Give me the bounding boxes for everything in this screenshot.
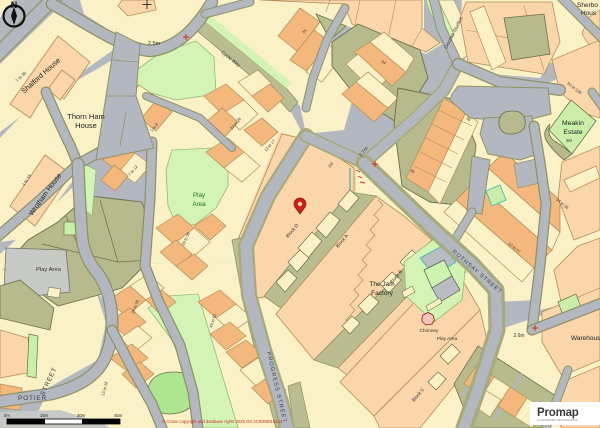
svg-text:Play Area: Play Area: [437, 336, 458, 342]
svg-text:5M: 5M: [566, 138, 572, 143]
svg-text:Estate: Estate: [563, 129, 582, 136]
svg-text:Thorn Ham: Thorn Ham: [67, 112, 105, 121]
svg-text:Play: Play: [193, 192, 206, 199]
svg-text:15m: 15m: [40, 413, 49, 418]
svg-text:The Jam: The Jam: [369, 281, 394, 288]
svg-text:45m: 45m: [114, 413, 123, 418]
svg-text:0m: 0m: [4, 413, 10, 418]
svg-text:© Crown copyright and database: © Crown copyright and database rights 20…: [162, 419, 283, 424]
svg-text:Sherbo: Sherbo: [577, 2, 598, 9]
svg-text:Factory: Factory: [371, 290, 393, 297]
svg-text:Area: Area: [192, 201, 206, 208]
svg-text:House: House: [75, 121, 97, 130]
svg-text:Warehouse: Warehouse: [571, 335, 600, 342]
svg-text:N: N: [11, 0, 18, 10]
svg-text:A LANDMARK INFORMATION: A LANDMARK INFORMATION: [537, 418, 578, 422]
svg-text:2.5m: 2.5m: [148, 41, 161, 47]
svg-text:Chimney: Chimney: [420, 328, 440, 334]
svg-text:30m: 30m: [77, 413, 86, 418]
svg-text:Hous: Hous: [581, 10, 597, 17]
svg-text:2.6m: 2.6m: [513, 333, 524, 339]
svg-text:Play Area: Play Area: [36, 267, 62, 273]
svg-text:Meakin: Meakin: [562, 120, 584, 127]
